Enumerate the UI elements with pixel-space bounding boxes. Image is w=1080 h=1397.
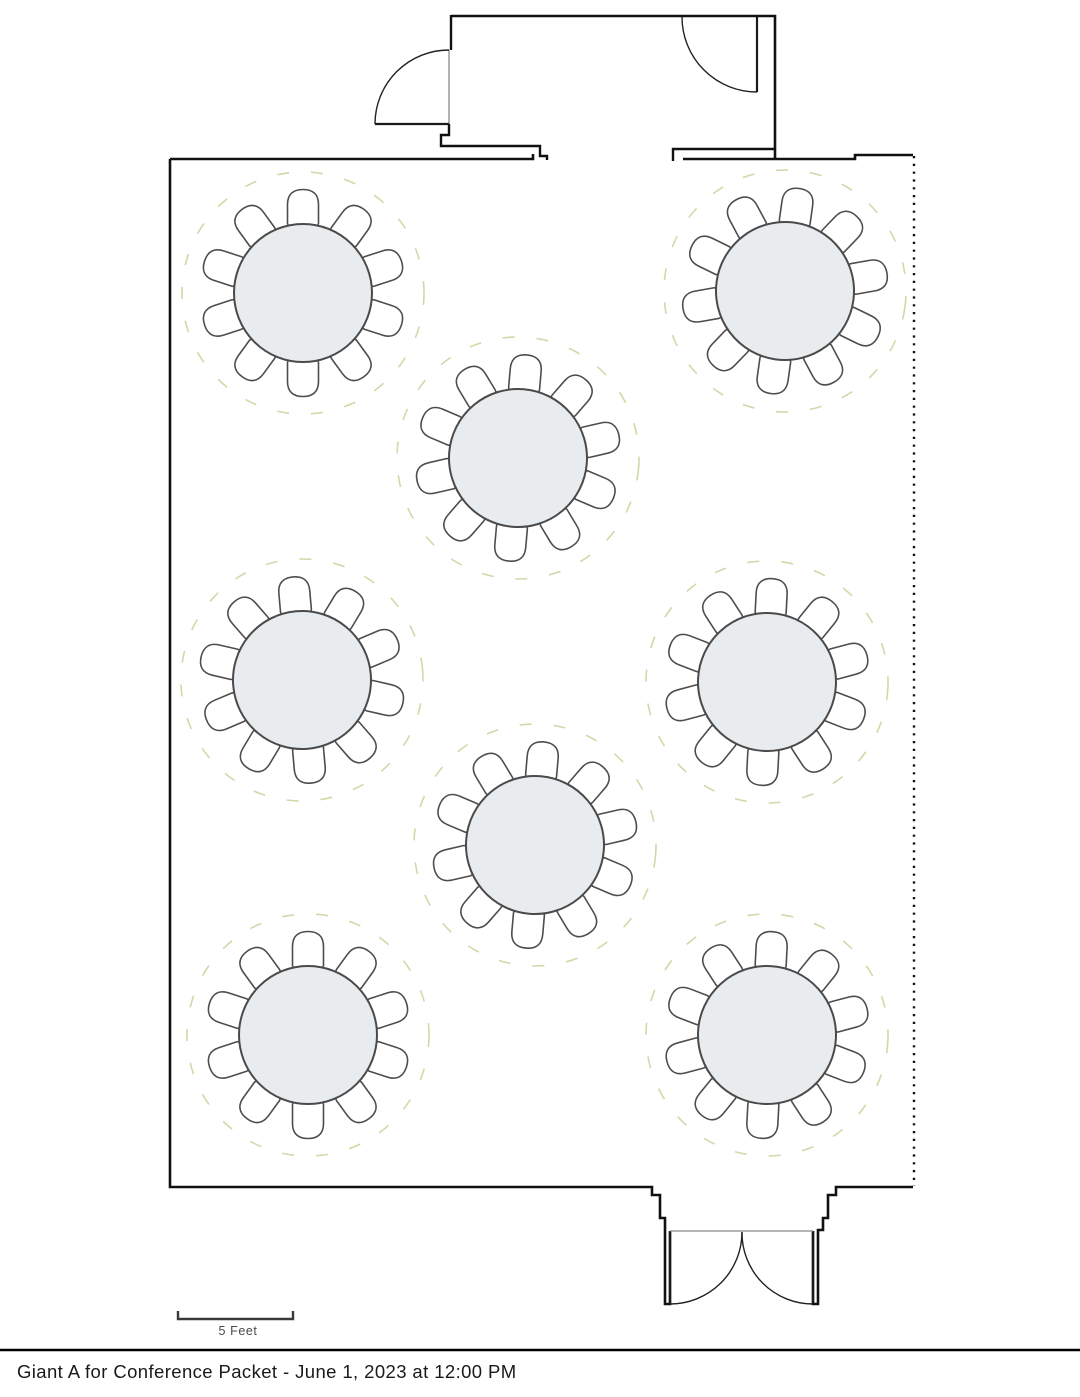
chair bbox=[755, 355, 791, 395]
wall bbox=[683, 155, 913, 159]
chair bbox=[508, 354, 542, 393]
chair bbox=[755, 931, 788, 969]
table-2 bbox=[648, 154, 921, 427]
chair bbox=[494, 523, 528, 562]
chair bbox=[525, 741, 559, 780]
wall bbox=[451, 16, 775, 158]
table-6 bbox=[404, 714, 666, 976]
document-title: Giant A for Conference Packet - June 1, … bbox=[17, 1361, 517, 1382]
tables-layer bbox=[171, 154, 922, 1162]
chair bbox=[746, 748, 779, 786]
scale-bar-label: 5 Feet bbox=[218, 1324, 257, 1338]
table-1 bbox=[182, 172, 424, 414]
chair bbox=[779, 186, 815, 226]
wall bbox=[441, 124, 547, 160]
table-8 bbox=[640, 908, 894, 1162]
door-swing-arc bbox=[670, 1232, 742, 1304]
table-3 bbox=[387, 327, 649, 589]
chair bbox=[278, 576, 312, 615]
footer: Giant A for Conference Packet - June 1, … bbox=[0, 1350, 1080, 1382]
floor-plan-canvas: 5 Feet Giant A for Conference Packet - J… bbox=[0, 0, 1080, 1397]
door-swing-arc bbox=[375, 50, 449, 124]
table-7 bbox=[187, 914, 429, 1156]
conference-floor-plan-page: 5 Feet Giant A for Conference Packet - J… bbox=[0, 0, 1080, 1397]
wall bbox=[813, 1187, 913, 1304]
chair bbox=[746, 1101, 779, 1139]
chair bbox=[293, 932, 324, 969]
table-5 bbox=[640, 555, 894, 809]
scale-bar: 5 Feet bbox=[178, 1311, 293, 1338]
table-4 bbox=[171, 549, 433, 811]
chair bbox=[288, 190, 319, 227]
chair bbox=[288, 360, 319, 397]
scale-bar-bracket bbox=[178, 1311, 293, 1319]
chair bbox=[292, 745, 326, 784]
chair bbox=[755, 578, 788, 616]
table-top bbox=[239, 966, 377, 1104]
door-swing-arc bbox=[742, 1232, 813, 1304]
table-top bbox=[234, 224, 372, 362]
chair bbox=[511, 910, 545, 949]
chair bbox=[293, 1102, 324, 1139]
door-swing-arc bbox=[682, 17, 757, 92]
wall bbox=[170, 154, 533, 159]
